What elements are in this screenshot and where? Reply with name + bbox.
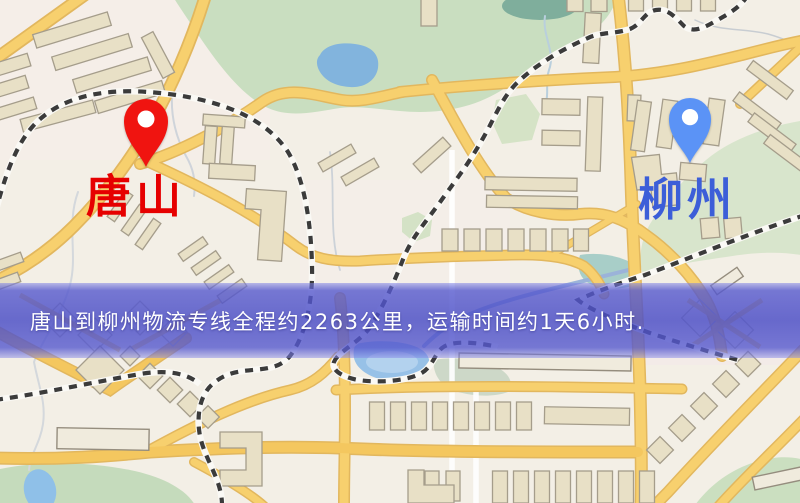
- route-info-banner: 唐山到柳州物流专线全程约2263公里，运输时间约1天6小时.: [0, 283, 800, 358]
- basemap: [0, 0, 800, 503]
- route-info-text: 唐山到柳州物流专线全程约2263公里，运输时间约1天6小时.: [0, 306, 645, 336]
- destination-pin-icon: [667, 97, 713, 164]
- origin-pin-icon: [122, 98, 170, 168]
- logistics-map-image: 唐山 柳州 唐山到柳州物流专线全程约2263公里，运输时间约1天6小时.: [0, 0, 800, 503]
- origin-label: 唐山: [86, 174, 186, 219]
- destination-label: 柳州: [638, 177, 736, 222]
